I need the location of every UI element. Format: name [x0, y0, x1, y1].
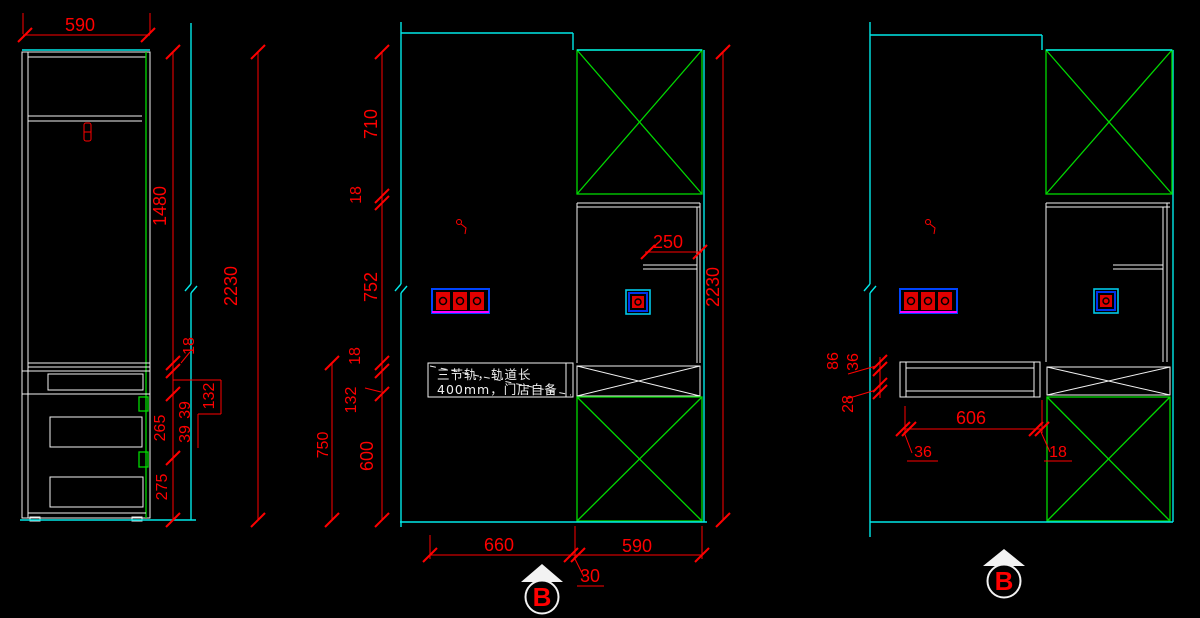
dim-text-18: 18 [348, 186, 365, 204]
dim-text-250: 250 [653, 232, 683, 252]
triple-socket [900, 289, 957, 313]
dim-text-132: 132 [343, 387, 360, 414]
dim-text-590: 590 [65, 15, 95, 35]
dim-text-2230: 2230 [703, 267, 723, 307]
dim-text-132: 132 [201, 383, 218, 410]
break-symbol [870, 286, 876, 293]
switch-symbol [926, 220, 931, 225]
section-arrow [521, 564, 563, 582]
dim-text-752: 752 [361, 272, 381, 302]
socket-unit [938, 292, 952, 310]
section-arrow [983, 549, 1025, 566]
dim-text-275: 275 [154, 474, 171, 501]
dim-leader [904, 432, 912, 453]
drawer-front [48, 374, 143, 390]
socket-unit [1100, 295, 1112, 307]
single-socket [1094, 289, 1118, 313]
section-label: B [995, 566, 1014, 596]
dim-text-36: 36 [845, 353, 862, 371]
section-label: B [533, 582, 552, 612]
drawer-box [50, 477, 143, 507]
socket-unit [904, 292, 918, 310]
section-marker-b: B [983, 549, 1025, 598]
cad-drawing-canvas[interactable]: 590 [0, 0, 1200, 618]
single-socket [626, 290, 650, 314]
dim-text-265: 265 [152, 415, 169, 442]
dim-text-18: 18 [347, 347, 364, 365]
socket-unit [632, 296, 644, 308]
switch-symbol [457, 220, 462, 225]
switch-symbol [930, 224, 935, 234]
socket-unit [921, 292, 935, 310]
dim-text-18: 18 [181, 337, 198, 355]
annotation-text-line2: 400mm，门店自备 [437, 382, 558, 397]
dim-text-710: 710 [361, 109, 381, 139]
section-marker-b: B [521, 564, 563, 614]
socket-unit [436, 292, 450, 310]
break-symbol [395, 284, 401, 291]
triple-socket [432, 289, 489, 313]
dim-text-18: 18 [1049, 444, 1067, 461]
break-symbol [185, 284, 191, 291]
dim-text-1480: 1480 [150, 186, 170, 226]
dim-text-606: 606 [956, 408, 986, 428]
drawer-band [900, 362, 1040, 397]
dim-text-39: 39 [177, 401, 194, 419]
cad-drawing: 590 [0, 0, 1200, 618]
break-symbol [864, 284, 870, 291]
socket-unit [470, 292, 484, 310]
switch-symbol [461, 224, 466, 234]
dim-text-600: 600 [357, 441, 377, 471]
socket-unit [453, 292, 467, 310]
drawer-box [50, 417, 142, 447]
dim-leader [365, 388, 381, 392]
dim-text-39: 39 [177, 425, 194, 443]
break-symbol [191, 286, 197, 293]
middle-view-elevation: 250 三节轨，轨道长 400mm，门店自备 [315, 22, 730, 614]
cabinet-outline [22, 52, 150, 518]
dim-text-750: 750 [315, 432, 332, 459]
annotation-text-line1: 三节轨，轨道长 [437, 367, 532, 382]
break-symbol [401, 286, 407, 293]
right-view-elevation: 86 36 28 606 36 18 B [825, 22, 1173, 598]
dim-text-590: 590 [622, 536, 652, 556]
dim-text-86: 86 [825, 352, 842, 370]
dim-text-28: 28 [840, 395, 857, 413]
left-view-side-section: 590 [18, 13, 265, 527]
dim-text-36: 36 [914, 444, 932, 461]
dim-text-30: 30 [580, 566, 600, 586]
dim-text-2230: 2230 [221, 266, 241, 306]
dim-text-660: 660 [484, 535, 514, 555]
